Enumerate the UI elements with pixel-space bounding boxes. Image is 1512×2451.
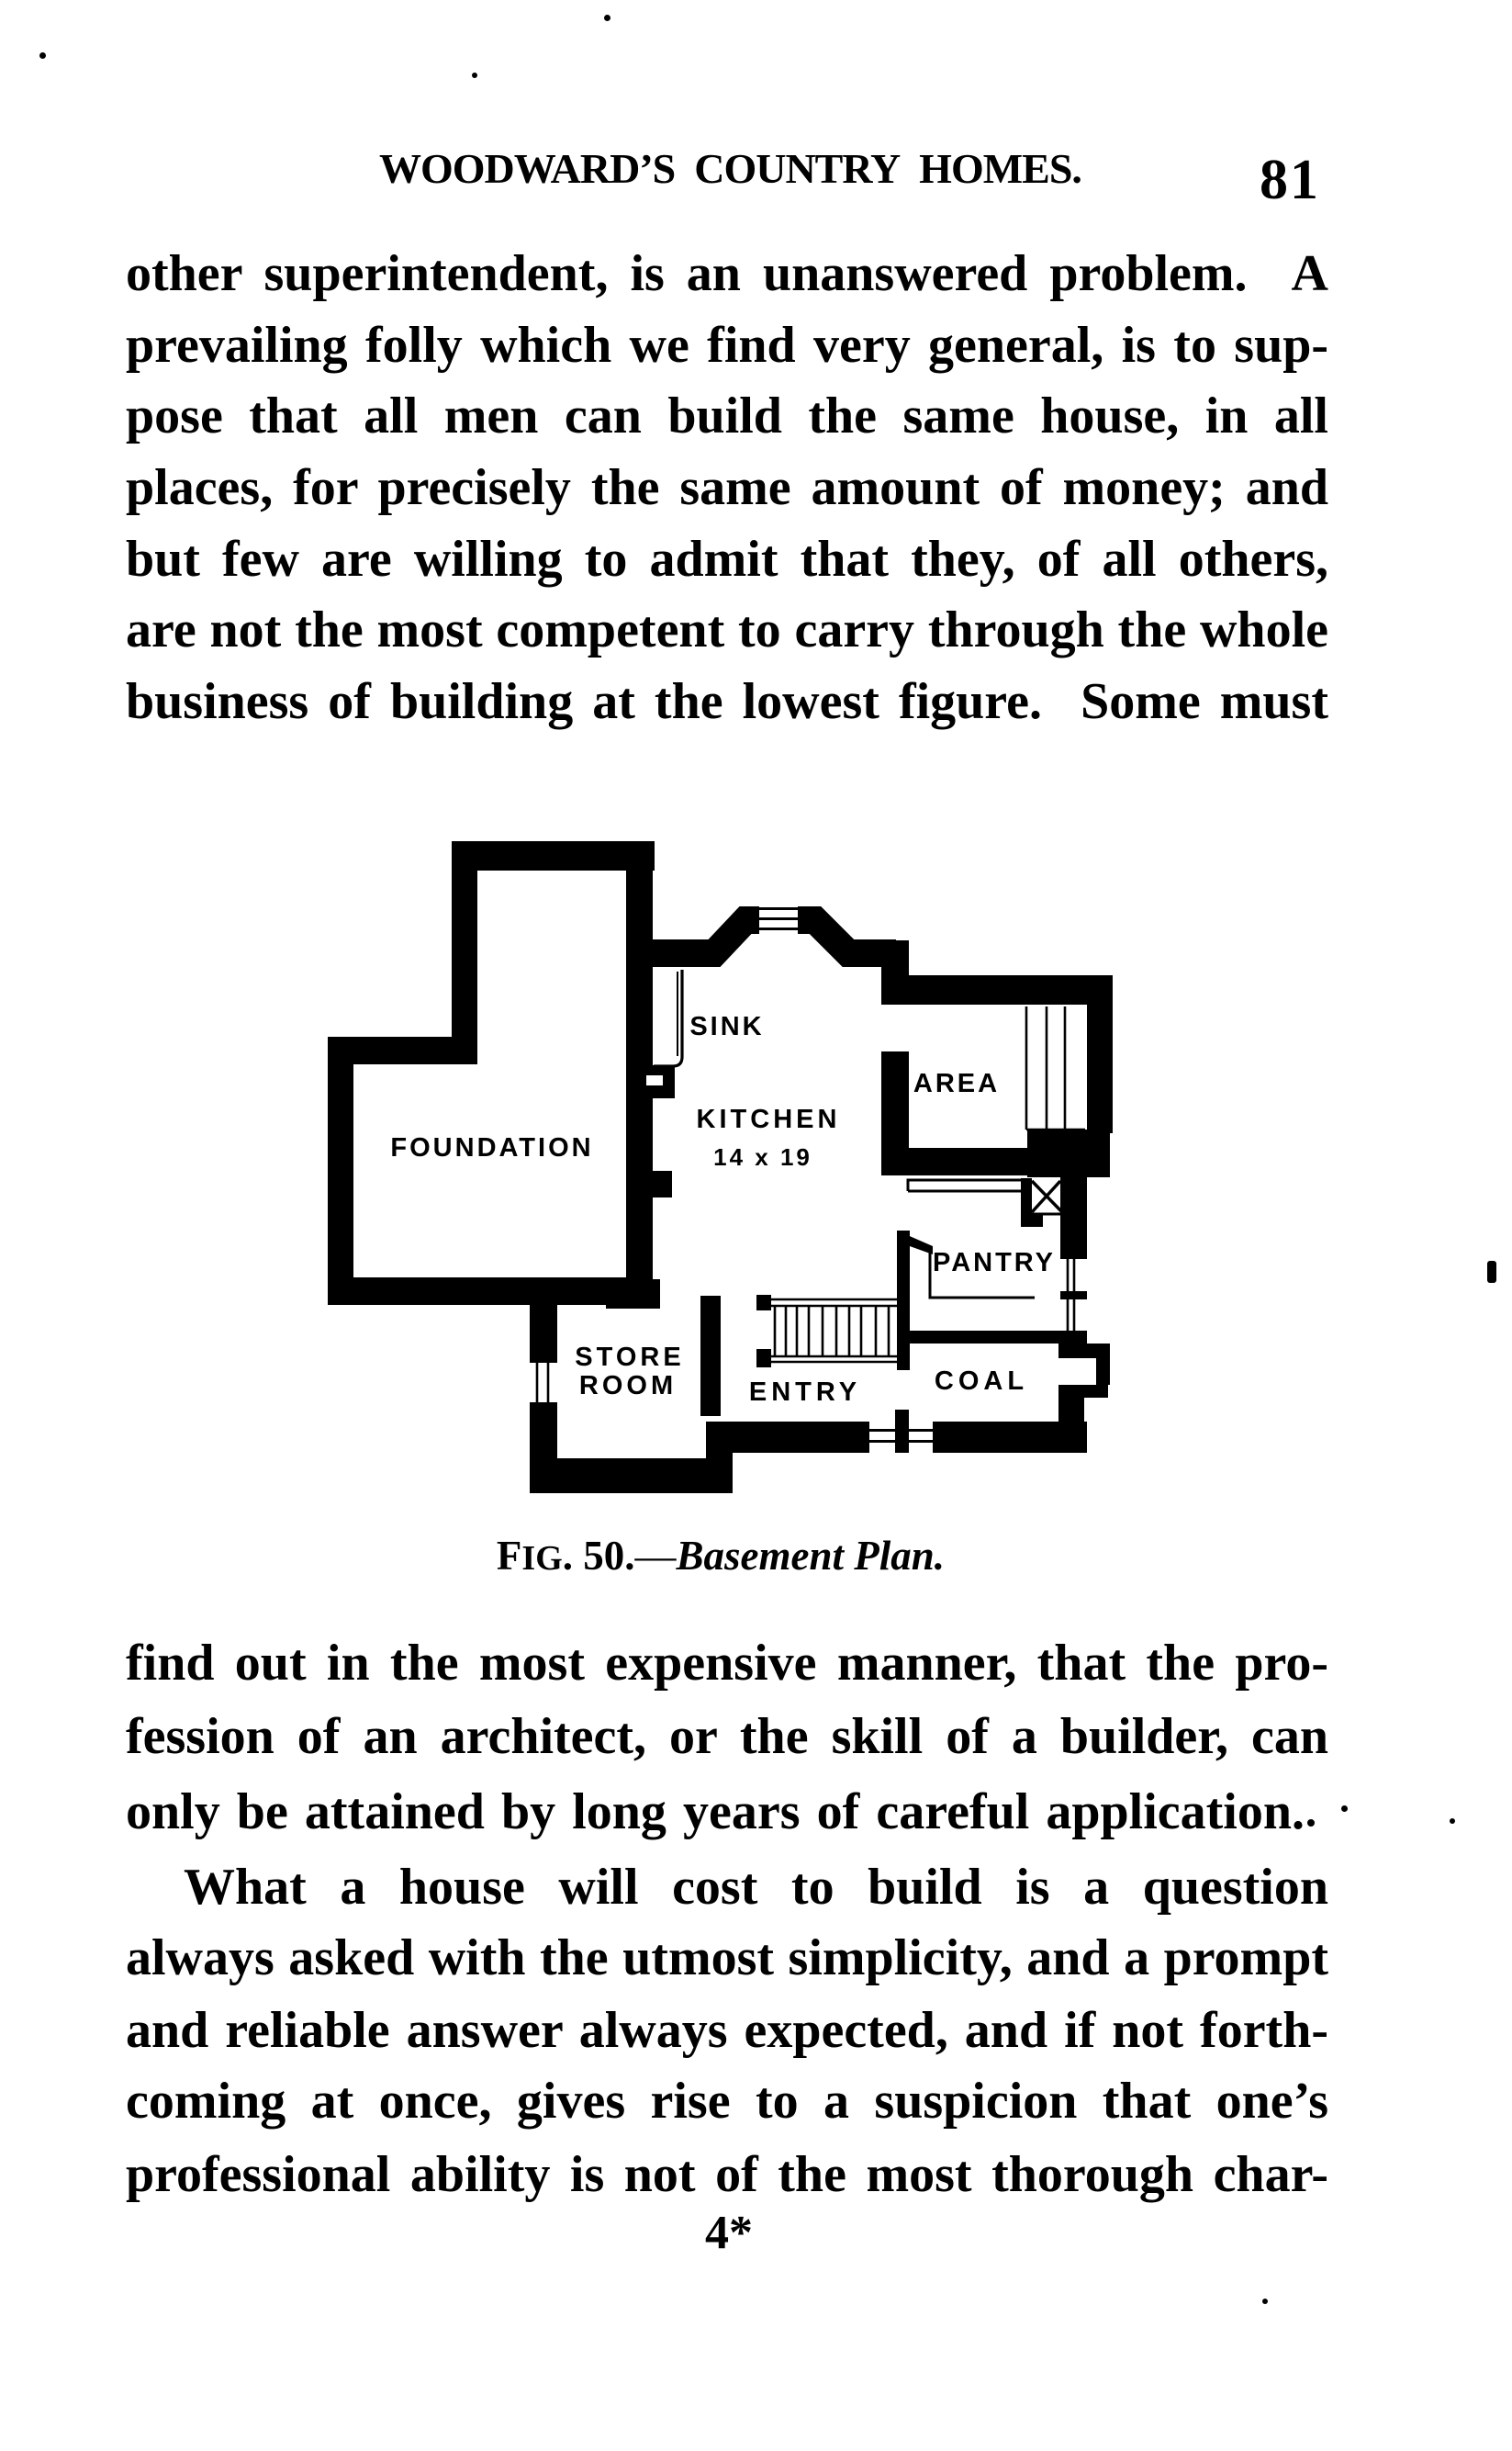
svg-text:SINK: SINK xyxy=(689,1012,764,1041)
svg-text:FOUNDATION: FOUNDATION xyxy=(390,1133,593,1163)
svg-text:STORE: STORE xyxy=(575,1343,684,1372)
svg-text:AREA: AREA xyxy=(913,1069,1000,1098)
svg-text:ROOM: ROOM xyxy=(579,1371,677,1400)
svg-text:KITCHEN: KITCHEN xyxy=(697,1105,841,1134)
svg-text:COAL: COAL xyxy=(935,1366,1028,1396)
svg-text:PANTRY: PANTRY xyxy=(933,1248,1056,1277)
svg-text:ENTRY: ENTRY xyxy=(749,1377,861,1407)
svg-text:14 x 19: 14 x 19 xyxy=(713,1143,812,1171)
